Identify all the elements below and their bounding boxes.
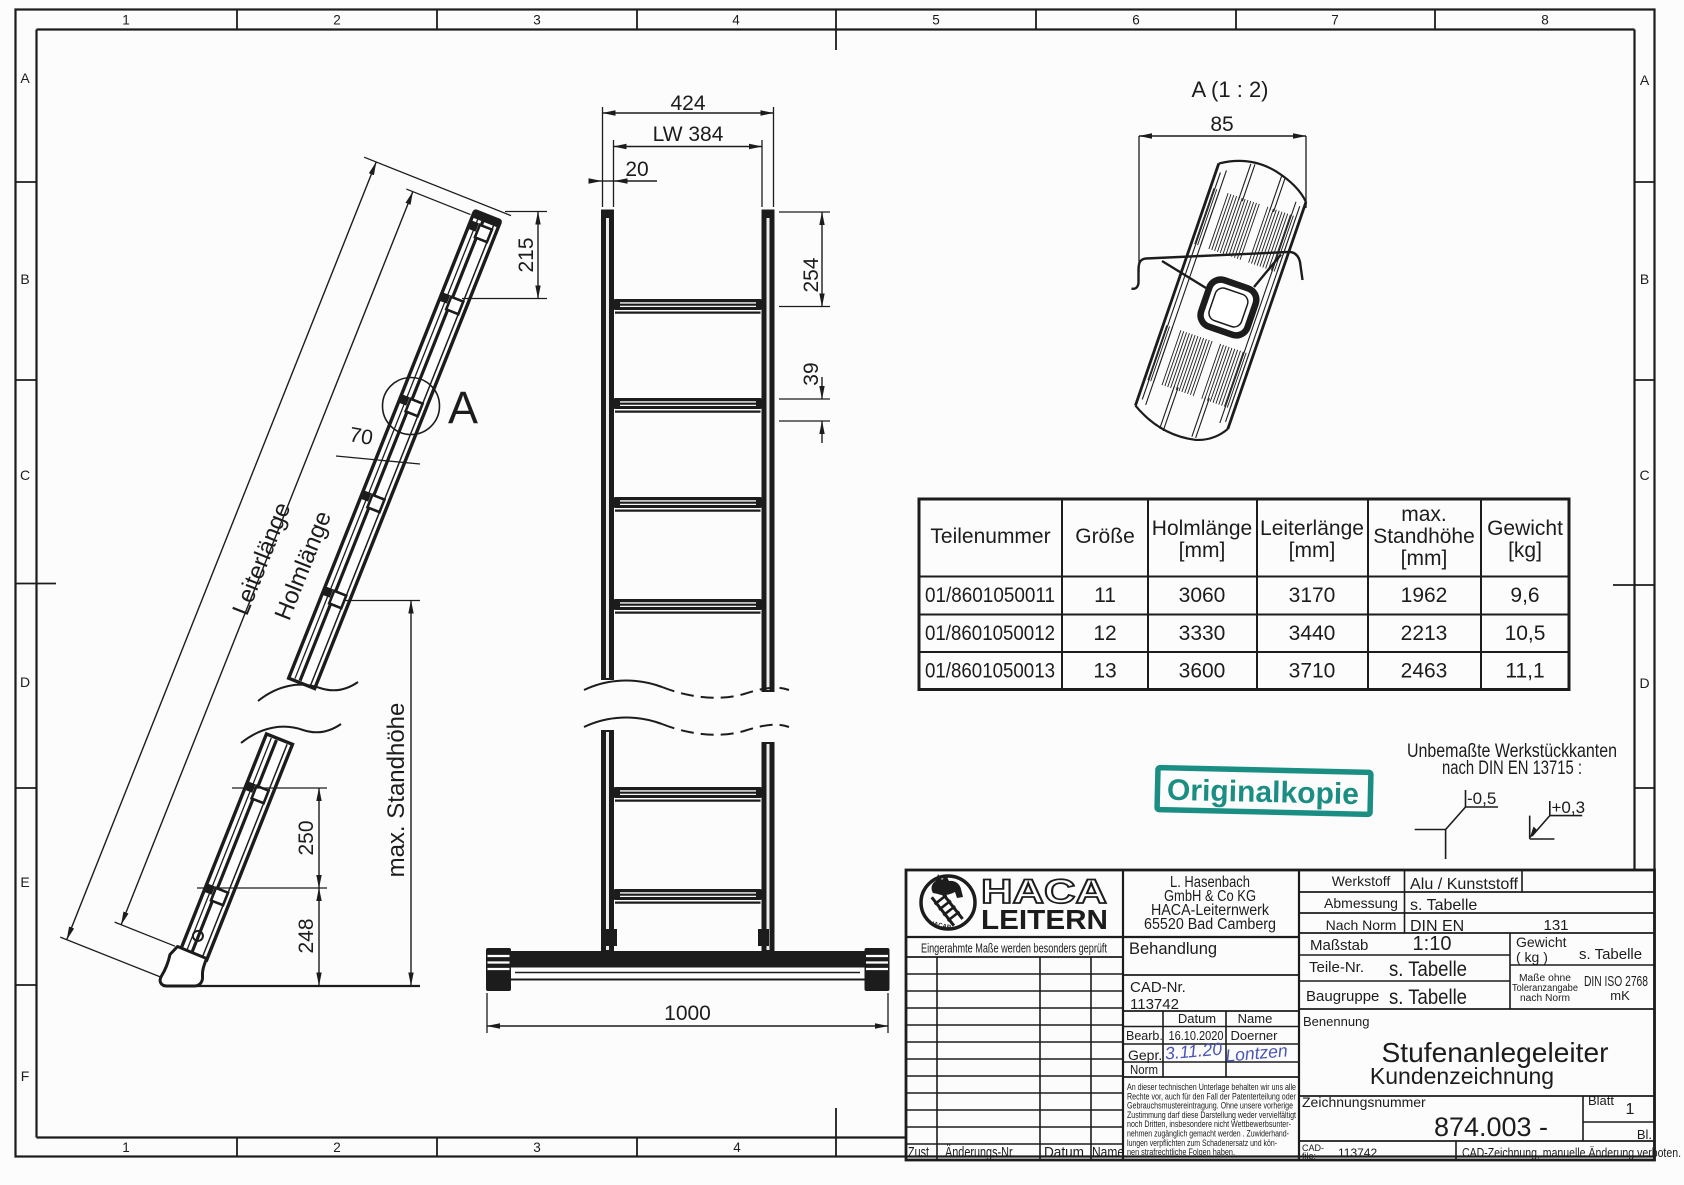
svg-text:Eingerahmte Maße werden besond: Eingerahmte Maße werden besonders geprüf… (921, 942, 1107, 956)
svg-text:A: A (20, 70, 30, 86)
svg-text:8: 8 (1541, 13, 1549, 28)
svg-text:D: D (20, 674, 30, 690)
svg-text:[kg]: [kg] (1508, 539, 1542, 562)
svg-text:4: 4 (732, 13, 740, 28)
svg-text:[mm]: [mm] (1289, 539, 1336, 562)
svg-text:1: 1 (1626, 1101, 1635, 1118)
svg-text:113742: 113742 (1338, 1146, 1377, 1160)
svg-text:Name: Name (1092, 1144, 1124, 1161)
svg-text:Änderungs-Nr.: Änderungs-Nr. (945, 1144, 1015, 1161)
svg-text:1000: 1000 (664, 1002, 711, 1025)
svg-text:Norm: Norm (1130, 1062, 1158, 1077)
svg-text:39: 39 (800, 362, 823, 385)
svg-text:B: B (20, 271, 29, 287)
svg-text:B: B (1640, 271, 1649, 287)
svg-text:mK: mK (1610, 988, 1630, 1003)
svg-text:11,1: 11,1 (1505, 660, 1544, 683)
svg-text:Kundenzeichnung: Kundenzeichnung (1370, 1063, 1554, 1089)
svg-text:nach DIN EN 13715 :: nach DIN EN 13715 : (1442, 758, 1582, 779)
svg-text:3: 3 (533, 13, 541, 28)
svg-text:3060: 3060 (1179, 584, 1226, 607)
svg-text:Abmessung: Abmessung (1324, 895, 1398, 911)
svg-text:13: 13 (1093, 660, 1116, 683)
svg-text:max.: max. (1401, 503, 1447, 526)
svg-text:254: 254 (800, 257, 823, 292)
svg-text:85: 85 (1210, 113, 1233, 136)
svg-text:Werkstoff: Werkstoff (1332, 873, 1391, 889)
svg-text:Originalkopie: Originalkopie (1167, 774, 1360, 811)
svg-text:C: C (20, 467, 30, 483)
svg-text:Nach Norm: Nach Norm (1326, 917, 1397, 933)
svg-text:Datum: Datum (1044, 1144, 1084, 1161)
svg-text:1: 1 (122, 1140, 130, 1155)
svg-text:Alu / Kunststoff: Alu / Kunststoff (1410, 876, 1519, 893)
svg-text:Bl.: Bl. (1637, 1127, 1652, 1142)
svg-text:nach Norm: nach Norm (1520, 993, 1570, 1004)
svg-text:file:: file: (1302, 1151, 1316, 1161)
svg-text:3: 3 (533, 1140, 541, 1155)
svg-text:C: C (1639, 467, 1649, 483)
svg-text:-0,5: -0,5 (1467, 789, 1496, 808)
svg-text:s. Tabelle: s. Tabelle (1389, 986, 1467, 1009)
svg-text:Datum: Datum (1178, 1011, 1216, 1026)
svg-text:11: 11 (1094, 584, 1116, 607)
svg-text:10,5: 10,5 (1505, 622, 1546, 645)
svg-text:2213: 2213 (1401, 622, 1448, 645)
svg-text:Zeichnungsnummer: Zeichnungsnummer (1302, 1094, 1426, 1110)
svg-text:Teile-Nr.: Teile-Nr. (1309, 959, 1364, 976)
svg-text:248: 248 (295, 918, 318, 953)
svg-text:2: 2 (333, 1140, 341, 1155)
svg-text:LW 384: LW 384 (653, 123, 724, 146)
svg-text:[mm]: [mm] (1401, 547, 1448, 570)
svg-text:424: 424 (670, 92, 705, 115)
svg-text:01/8601050011: 01/8601050011 (925, 584, 1055, 607)
svg-text:3600: 3600 (1179, 660, 1226, 683)
svg-text:Blatt: Blatt (1588, 1093, 1614, 1108)
svg-text:65520 Bad Camberg: 65520 Bad Camberg (1144, 916, 1276, 933)
svg-text:s. Tabelle: s. Tabelle (1410, 897, 1477, 914)
svg-text:1962: 1962 (1401, 584, 1448, 607)
svg-text:Bearb.: Bearb. (1126, 1029, 1163, 1043)
svg-text:3710: 3710 (1289, 660, 1336, 683)
svg-text:Holmlänge: Holmlänge (1152, 517, 1252, 540)
svg-text:20: 20 (625, 158, 648, 181)
svg-text:Standhöhe: Standhöhe (1373, 525, 1475, 548)
svg-text:3170: 3170 (1289, 584, 1336, 607)
svg-text:nen strafrechtliche Folgen hab: nen strafrechtliche Folgen haben. (1127, 1147, 1235, 1157)
svg-text:LEITERN: LEITERN (981, 904, 1108, 935)
svg-text:2: 2 (333, 13, 341, 28)
svg-text:3440: 3440 (1289, 622, 1336, 645)
svg-text:7: 7 (1331, 13, 1339, 28)
svg-text:Teilenummer: Teilenummer (930, 525, 1050, 548)
svg-text:Gewicht: Gewicht (1487, 517, 1563, 540)
svg-text:s. Tabelle: s. Tabelle (1389, 958, 1467, 981)
svg-text:s. Tabelle: s. Tabelle (1579, 946, 1642, 963)
svg-text:Leiterlänge: Leiterlänge (1260, 517, 1364, 540)
svg-text:E: E (20, 874, 29, 890)
svg-text:Gepr.: Gepr. (1128, 1047, 1162, 1063)
svg-text:max. Standhöhe: max. Standhöhe (383, 703, 410, 878)
svg-text:Gewicht: Gewicht (1516, 934, 1567, 950)
svg-text:[mm]: [mm] (1179, 539, 1226, 562)
svg-text:6: 6 (1132, 13, 1140, 28)
svg-text:Maßstab: Maßstab (1310, 937, 1368, 954)
svg-text:1: 1 (122, 13, 130, 28)
svg-text:Behandlung: Behandlung (1129, 940, 1217, 958)
svg-text:3330: 3330 (1179, 622, 1226, 645)
svg-text:9,6: 9,6 (1510, 584, 1539, 607)
svg-text:874.003 -: 874.003 - (1434, 1112, 1548, 1142)
svg-text:1:10: 1:10 (1413, 933, 1452, 955)
svg-text:01/8601050012: 01/8601050012 (925, 622, 1055, 645)
svg-text:70: 70 (348, 423, 375, 450)
svg-text:Name: Name (1238, 1011, 1273, 1026)
svg-text:A (1 : 2): A (1 : 2) (1191, 77, 1268, 102)
svg-text:F: F (21, 1068, 30, 1084)
svg-text:131: 131 (1543, 917, 1568, 934)
svg-text:01/8601050013: 01/8601050013 (925, 660, 1055, 683)
svg-text:A: A (1640, 72, 1650, 88)
svg-text:250: 250 (295, 820, 318, 855)
svg-text:CAD-Nr.: CAD-Nr. (1130, 979, 1186, 996)
svg-text:Baugruppe: Baugruppe (1306, 988, 1379, 1005)
svg-text:+0,3: +0,3 (1552, 798, 1586, 817)
svg-text:5: 5 (932, 13, 940, 28)
svg-text:( kg ): ( kg ) (1516, 949, 1548, 965)
svg-text:CAD-Zeichnung, manuelle Änderu: CAD-Zeichnung, manuelle Änderung verbote… (1462, 1145, 1681, 1160)
svg-text:Größe: Größe (1075, 525, 1135, 548)
svg-text:215: 215 (515, 237, 538, 272)
svg-text:4: 4 (733, 1140, 741, 1155)
svg-text:A: A (448, 382, 478, 433)
svg-text:Benennung: Benennung (1303, 1014, 1370, 1029)
svg-text:2463: 2463 (1401, 660, 1448, 683)
svg-text:Zust.: Zust. (908, 1144, 932, 1161)
svg-text:12: 12 (1093, 622, 1116, 645)
svg-text:D: D (1639, 675, 1649, 691)
